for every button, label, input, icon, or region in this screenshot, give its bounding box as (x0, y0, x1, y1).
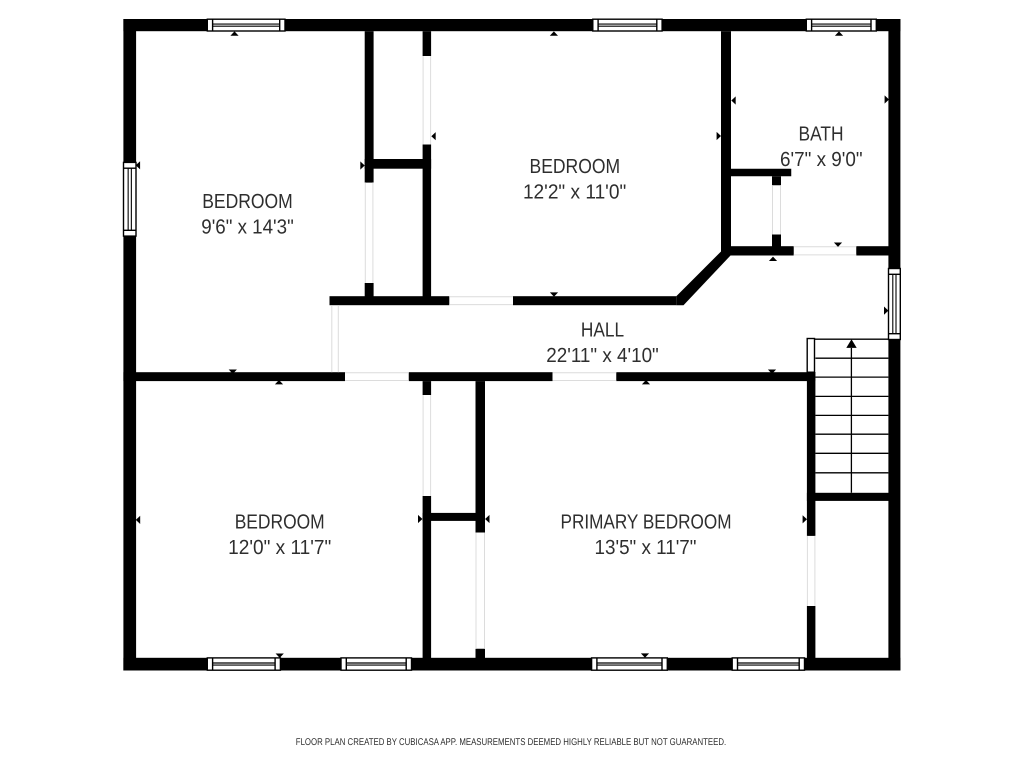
svg-text:9'6" x 14'3": 9'6" x 14'3" (201, 217, 294, 239)
svg-text:6'7" x 9'0": 6'7" x 9'0" (780, 149, 863, 171)
svg-text:BEDROOM: BEDROOM (530, 156, 621, 178)
svg-text:22'11" x 4'10": 22'11" x 4'10" (546, 345, 659, 367)
svg-text:BEDROOM: BEDROOM (235, 511, 325, 533)
svg-text:FLOOR PLAN CREATED BY CUBICASA: FLOOR PLAN CREATED BY CUBICASA APP. MEAS… (296, 737, 726, 748)
svg-text:BATH: BATH (799, 124, 844, 146)
svg-text:12'0" x 11'7": 12'0" x 11'7" (228, 537, 331, 559)
svg-text:HALL: HALL (581, 320, 624, 342)
svg-text:13'5" x 11'7": 13'5" x 11'7" (595, 537, 697, 559)
svg-text:12'2" x 11'0": 12'2" x 11'0" (523, 181, 626, 203)
svg-text:PRIMARY BEDROOM: PRIMARY BEDROOM (561, 511, 732, 533)
svg-text:BEDROOM: BEDROOM (202, 191, 293, 213)
